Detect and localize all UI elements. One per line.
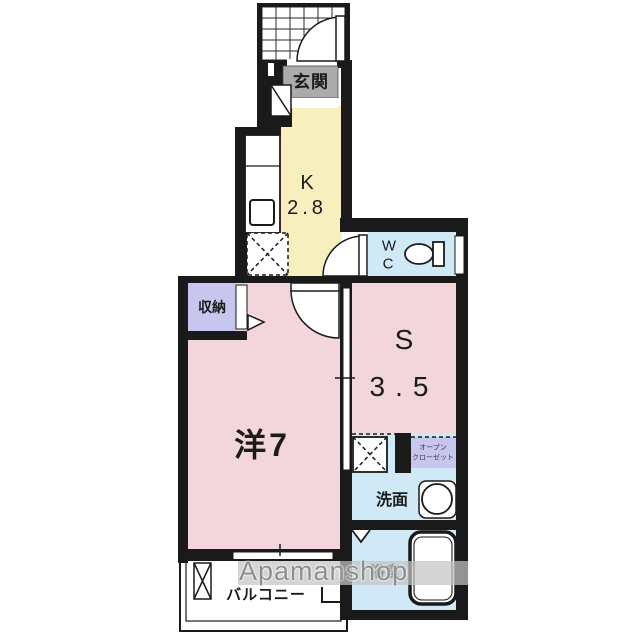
wall-bath-top bbox=[352, 520, 456, 530]
wc-window bbox=[455, 236, 464, 274]
watermark-text: Apamanshop bbox=[239, 558, 408, 585]
front-door-leaf bbox=[336, 16, 345, 61]
wall-kitchen-right bbox=[341, 60, 352, 232]
toilet-tank bbox=[433, 242, 444, 266]
kitchen-size-label: 2.8 bbox=[287, 198, 327, 218]
western-room-label: 洋7 bbox=[234, 429, 290, 461]
storage-door bbox=[236, 285, 247, 329]
hall-door-leaf bbox=[359, 235, 367, 276]
washroom-label: 洗面 bbox=[376, 493, 408, 509]
wash-basin bbox=[422, 484, 452, 514]
floor-plan-canvas: 玄関 K 2.8 W C 収納 洋7 S 3.5 オープン クローゼット 洗面 … bbox=[0, 0, 640, 640]
balcony-label: バルコニー bbox=[226, 588, 306, 603]
service-room-size-label: 3.5 bbox=[370, 373, 439, 401]
western-room-door-leaf bbox=[291, 283, 339, 291]
floor-plan-drawing bbox=[0, 0, 640, 640]
storage-label: 収納 bbox=[198, 300, 226, 314]
open-closet-label-line2: クローゼット bbox=[412, 455, 454, 462]
open-closet-floor bbox=[411, 437, 456, 468]
wall-storage-bottom bbox=[188, 331, 247, 340]
wall-washroom-stub bbox=[395, 433, 411, 473]
wall-porch-left bbox=[257, 3, 262, 61]
genkan-label: 玄関 bbox=[293, 74, 329, 91]
service-room-type-label: S bbox=[395, 326, 414, 354]
wall-bath-bottom bbox=[340, 610, 468, 620]
wc-label-line2: C bbox=[383, 257, 394, 272]
wall-wc-top bbox=[340, 218, 468, 232]
toilet-bowl bbox=[405, 244, 433, 264]
balcony-step-mark bbox=[322, 587, 341, 602]
kitchen-sink bbox=[250, 200, 274, 225]
open-closet-label-line1: オープン bbox=[419, 445, 447, 452]
wall-left-exterior bbox=[178, 276, 188, 563]
service-room-floor bbox=[352, 283, 456, 433]
balcony-equipment-box bbox=[194, 563, 211, 599]
sliding-door bbox=[343, 288, 350, 470]
entrance-wall-window bbox=[268, 63, 274, 76]
washing-machine-space bbox=[353, 437, 387, 472]
refrigerator-space bbox=[247, 233, 288, 275]
wall-porch-top bbox=[257, 3, 350, 7]
wall-main-horizontal bbox=[178, 276, 468, 283]
wc-label-line1: W bbox=[382, 239, 396, 254]
kitchen-type-label: K bbox=[300, 173, 313, 193]
